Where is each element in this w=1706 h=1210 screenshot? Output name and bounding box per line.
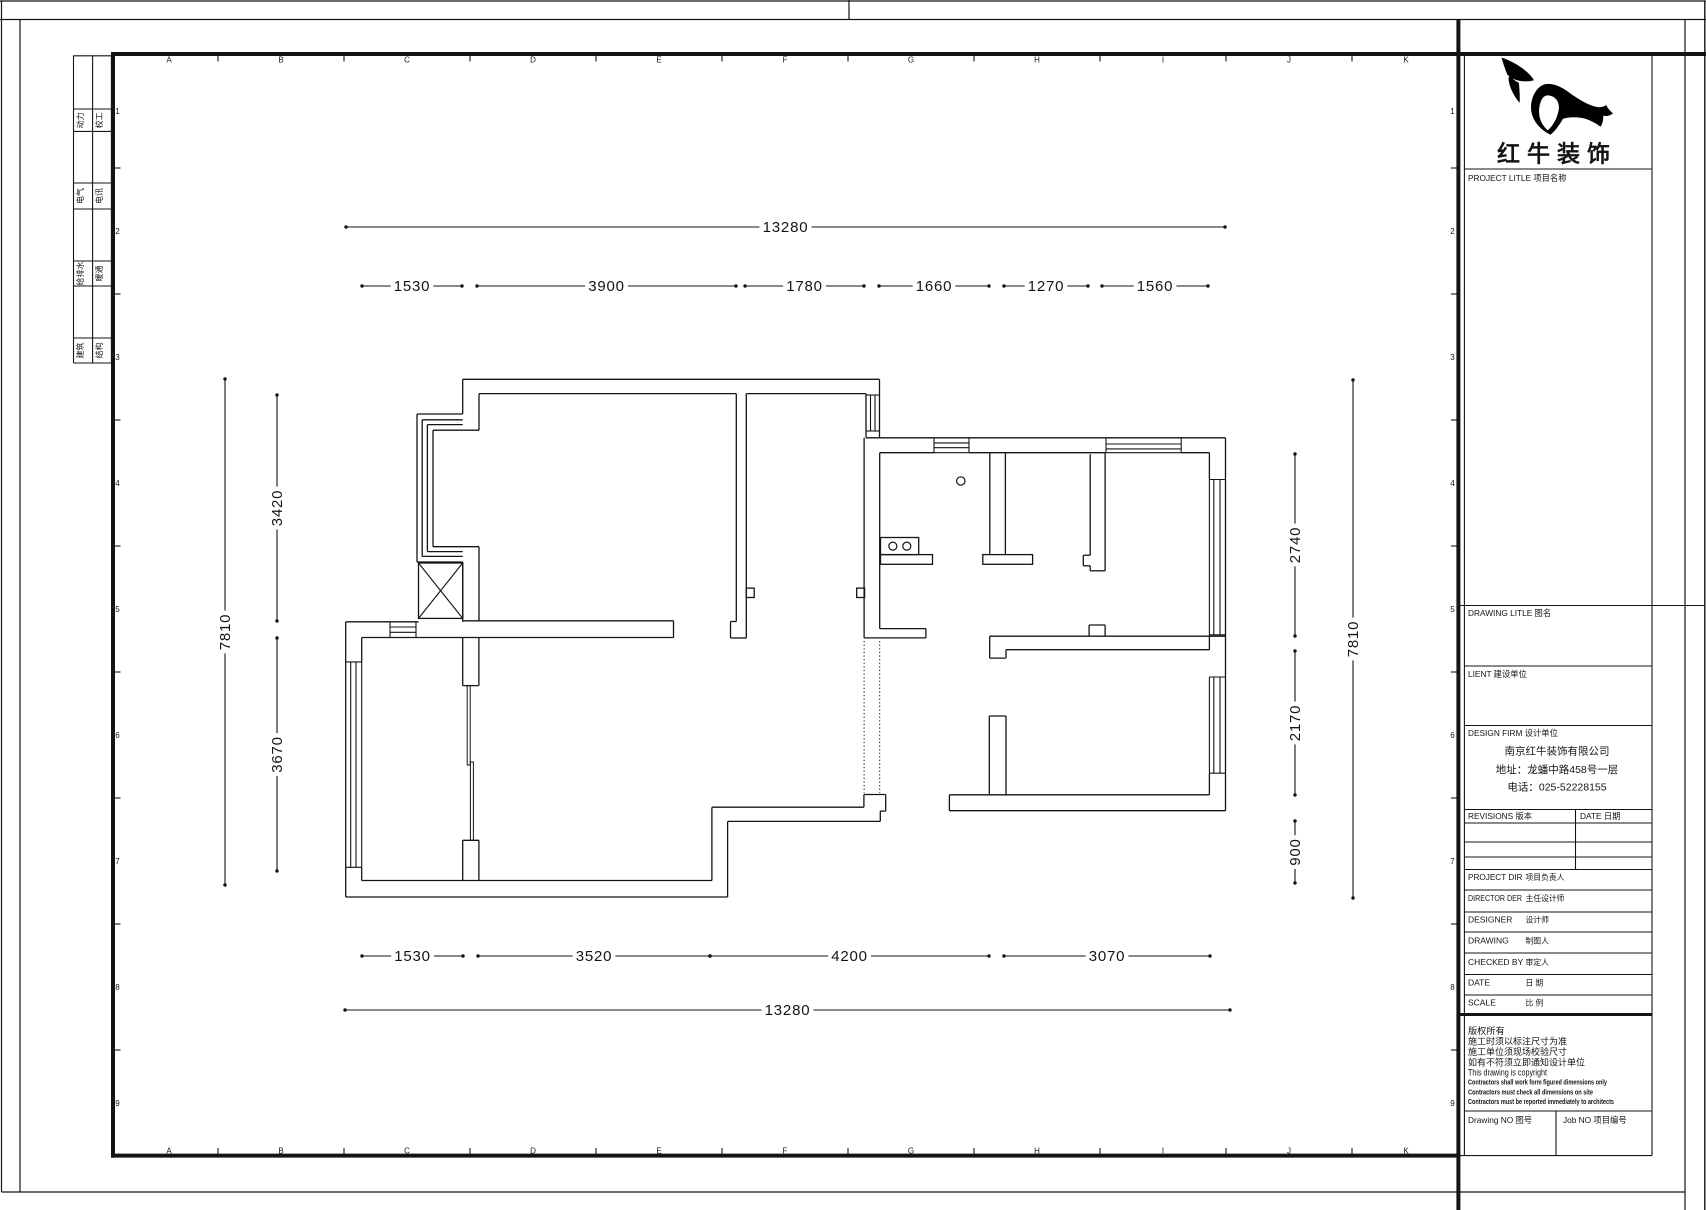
svg-text:J: J — [1287, 1147, 1291, 1156]
svg-text:DESIGN FIRM 设计单位: DESIGN FIRM 设计单位 — [1468, 728, 1558, 738]
svg-text:给排水: 给排水 — [75, 262, 85, 286]
svg-text:G: G — [908, 56, 914, 65]
svg-text:8: 8 — [115, 983, 120, 992]
svg-text:施工时须以标注尺寸为准: 施工时须以标注尺寸为准 — [1468, 1036, 1567, 1047]
svg-text:3520: 3520 — [576, 948, 613, 965]
svg-text:电讯: 电讯 — [94, 188, 104, 204]
svg-text:1: 1 — [115, 107, 120, 116]
svg-text:比 例: 比 例 — [1526, 998, 1544, 1008]
svg-text:H: H — [1034, 56, 1040, 65]
svg-text:3: 3 — [1450, 353, 1455, 362]
svg-text:结构: 结构 — [94, 343, 104, 359]
svg-text:B: B — [278, 56, 283, 65]
svg-text:F: F — [783, 56, 788, 65]
svg-text:C: C — [404, 1147, 410, 1156]
svg-text:2: 2 — [115, 227, 120, 236]
svg-text:Job NO 项目编号: Job NO 项目编号 — [1563, 1115, 1627, 1125]
svg-text:13280: 13280 — [763, 219, 809, 236]
svg-text:主任设计师: 主任设计师 — [1526, 893, 1565, 903]
svg-text:F: F — [783, 1147, 788, 1156]
svg-text:13280: 13280 — [765, 1002, 811, 1019]
svg-text:PROJECT LITLE 项目名称: PROJECT LITLE 项目名称 — [1468, 173, 1567, 183]
svg-text:I: I — [1162, 56, 1164, 65]
svg-text:项目负责人: 项目负责人 — [1526, 872, 1565, 882]
svg-text:PROJECT DIR: PROJECT DIR — [1468, 873, 1523, 882]
svg-text:设计师: 设计师 — [1526, 915, 1550, 925]
svg-text:9: 9 — [115, 1099, 120, 1108]
svg-text:7: 7 — [115, 857, 120, 866]
svg-text:1560: 1560 — [1137, 278, 1174, 295]
svg-text:2170: 2170 — [1287, 705, 1304, 742]
svg-text:7810: 7810 — [217, 614, 234, 651]
svg-text:CHECKED BY: CHECKED BY — [1468, 957, 1524, 967]
svg-text:3420: 3420 — [269, 490, 286, 527]
svg-text:1270: 1270 — [1028, 278, 1065, 295]
svg-text:C: C — [404, 56, 410, 65]
svg-text:B: B — [278, 1147, 283, 1156]
svg-text:2: 2 — [1450, 227, 1455, 236]
svg-text:红牛装饰: 红牛装饰 — [1497, 141, 1617, 167]
svg-text:1530: 1530 — [394, 278, 431, 295]
svg-text:6: 6 — [1450, 731, 1455, 740]
svg-text:K: K — [1403, 1147, 1409, 1156]
svg-text:如有不符须立即通知设计单位: 如有不符须立即通知设计单位 — [1468, 1057, 1585, 1068]
svg-text:4200: 4200 — [831, 948, 868, 965]
svg-text:900: 900 — [1287, 838, 1304, 865]
svg-text:4: 4 — [115, 479, 120, 488]
svg-text:Drawing NO 图号: Drawing NO 图号 — [1468, 1115, 1532, 1125]
svg-text:9: 9 — [1450, 1099, 1455, 1108]
svg-text:3070: 3070 — [1089, 948, 1126, 965]
svg-text:7810: 7810 — [1345, 621, 1362, 658]
svg-text:A: A — [166, 56, 172, 65]
svg-text:8: 8 — [1450, 983, 1455, 992]
svg-text:Contractors shall work form fi: Contractors shall work form figured dime… — [1468, 1078, 1608, 1087]
svg-text:DATE: DATE — [1468, 978, 1490, 988]
svg-text:1530: 1530 — [394, 948, 431, 965]
svg-text:Contractors must be reported i: Contractors must be reported immediately… — [1468, 1097, 1614, 1106]
svg-text:3: 3 — [115, 353, 120, 362]
svg-text:制图人: 制图人 — [1526, 936, 1550, 946]
svg-text:电气: 电气 — [75, 188, 85, 204]
svg-text:D: D — [530, 56, 536, 65]
svg-text:A: A — [166, 1147, 172, 1156]
svg-text:H: H — [1034, 1147, 1040, 1156]
svg-text:LIENT 建设单位: LIENT 建设单位 — [1468, 669, 1527, 679]
svg-text:K: K — [1403, 56, 1409, 65]
svg-text:版权所有: 版权所有 — [1468, 1025, 1505, 1036]
svg-text:REVISIONS 版本: REVISIONS 版本 — [1468, 811, 1532, 821]
svg-text:3670: 3670 — [269, 736, 286, 773]
svg-text:DATE 日期: DATE 日期 — [1580, 811, 1620, 821]
svg-text:E: E — [656, 1147, 661, 1156]
svg-text:动力: 动力 — [75, 112, 85, 128]
svg-text:审定人: 审定人 — [1526, 957, 1550, 967]
svg-text:5: 5 — [1450, 605, 1455, 614]
svg-text:6: 6 — [115, 731, 120, 740]
svg-text:DRAWING LITLE 图名: DRAWING LITLE 图名 — [1468, 608, 1551, 618]
svg-text:校工: 校工 — [94, 112, 104, 128]
svg-text:施工单位须现场校验尺寸: 施工单位须现场校验尺寸 — [1468, 1046, 1567, 1057]
svg-text:J: J — [1287, 56, 1291, 65]
svg-text:Contractors must check all dim: Contractors must check all dimensions on… — [1468, 1088, 1593, 1097]
svg-text:DIRECTOR DER: DIRECTOR DER — [1468, 894, 1522, 903]
svg-text:3900: 3900 — [588, 278, 625, 295]
svg-text:This drawing is copyright: This drawing is copyright — [1468, 1068, 1547, 1078]
svg-text:4: 4 — [1450, 479, 1455, 488]
svg-text:E: E — [656, 56, 661, 65]
svg-text:DESIGNER: DESIGNER — [1468, 915, 1512, 925]
svg-text:1780: 1780 — [786, 278, 823, 295]
svg-text:G: G — [908, 1147, 914, 1156]
svg-text:7: 7 — [1450, 857, 1455, 866]
svg-text:南京红牛装饰有限公司: 南京红牛装饰有限公司 — [1505, 745, 1610, 758]
svg-text:I: I — [1162, 1147, 1164, 1156]
svg-text:2740: 2740 — [1287, 527, 1304, 564]
svg-text:建筑: 建筑 — [75, 343, 85, 359]
svg-text:地址：龙蟠中路458号一层: 地址：龙蟠中路458号一层 — [1496, 763, 1619, 776]
svg-text:SCALE: SCALE — [1468, 998, 1496, 1008]
svg-text:电话：025-52228155: 电话：025-52228155 — [1507, 781, 1606, 794]
svg-text:5: 5 — [115, 605, 120, 614]
svg-text:1: 1 — [1450, 107, 1455, 116]
svg-text:1660: 1660 — [916, 278, 953, 295]
svg-text:DRAWING: DRAWING — [1468, 936, 1509, 946]
svg-text:D: D — [530, 1147, 536, 1156]
svg-text:暖通: 暖通 — [94, 266, 104, 282]
svg-text:日 期: 日 期 — [1526, 979, 1544, 988]
